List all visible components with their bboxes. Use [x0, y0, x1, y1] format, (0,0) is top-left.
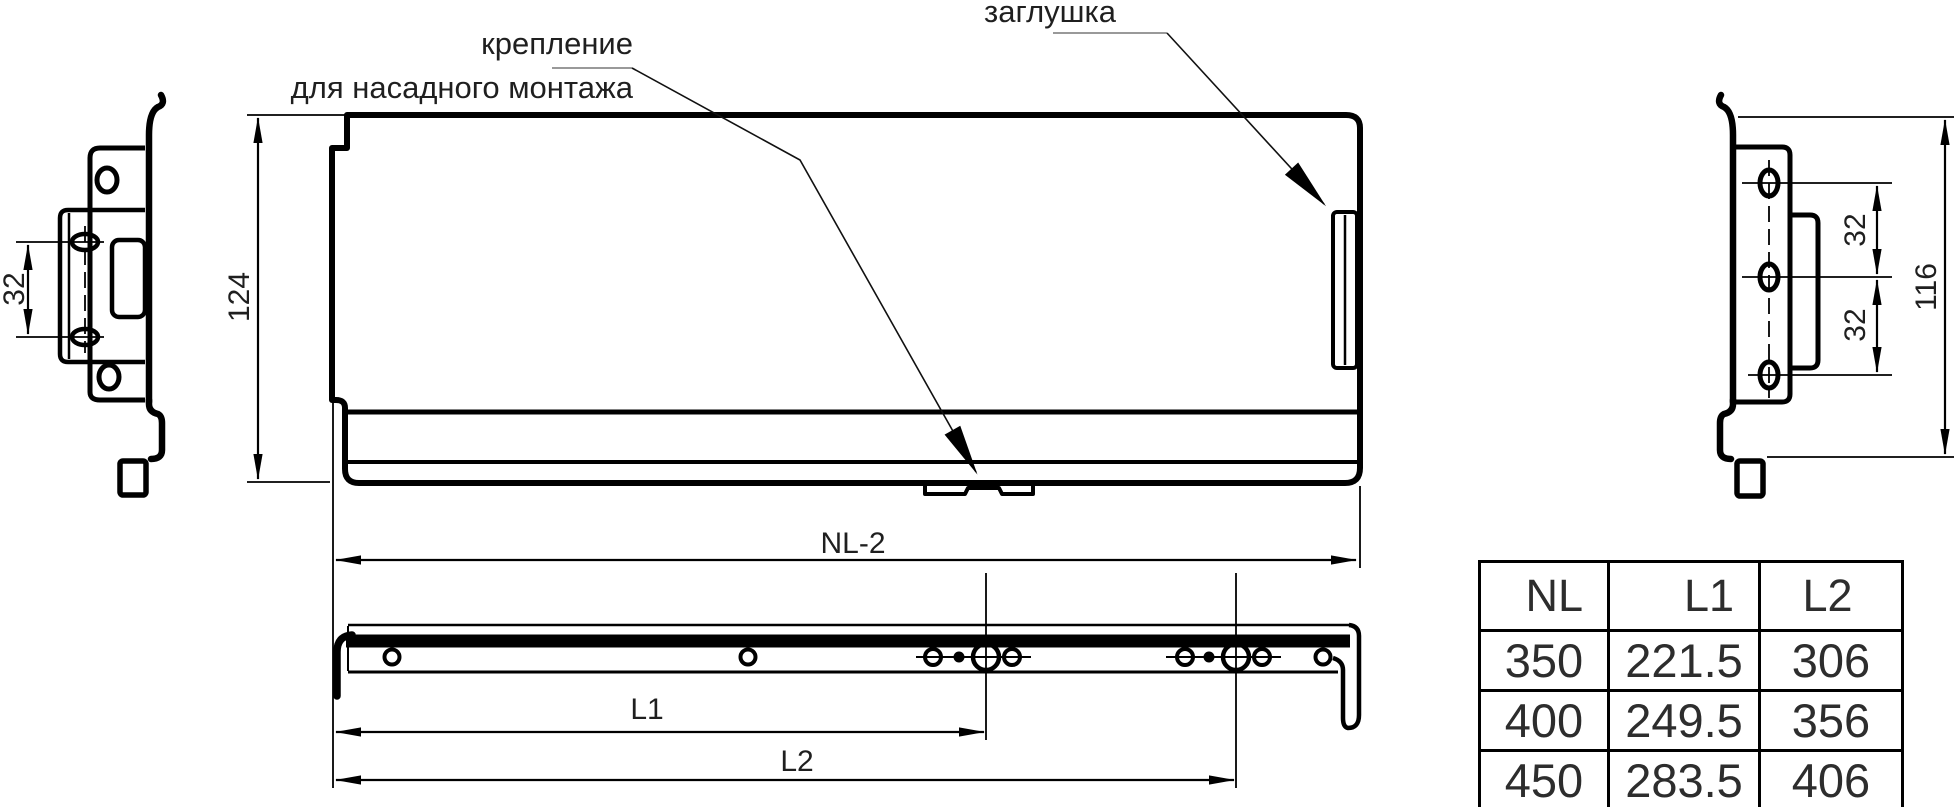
drawer-slide-technical-drawing: крепление для насадного монтажа заглушка…	[0, 0, 1958, 807]
mount-fixing-label: крепление для насадного монтажа	[291, 22, 633, 110]
table-cell-nl-450: 450	[1480, 751, 1609, 807]
side-panel-front-view	[332, 115, 1360, 494]
right-foot	[1737, 461, 1763, 496]
left-panel-section	[149, 95, 163, 402]
mount-fixing-label-line1: крепление	[291, 22, 633, 66]
dim-text-32-right-bottom: 32	[1839, 308, 1873, 341]
rail-rivet	[1204, 652, 1215, 663]
rail-rivet	[954, 652, 965, 663]
table-cell-l2-400: 356	[1760, 691, 1903, 751]
left-bracket-cutout	[112, 240, 145, 317]
left-hole-bottom	[99, 365, 119, 389]
dim-text-l1: L1	[630, 693, 663, 727]
table-header-nl: NL	[1480, 562, 1609, 631]
table-cell-l2-350: 306	[1760, 631, 1903, 691]
right-panel-section	[1719, 95, 1733, 402]
table-cell-nl-350: 350	[1480, 631, 1609, 691]
size-table: NL L1 L2 350 221.5 306 400 249.5 356 450…	[1478, 560, 1904, 807]
table-cell-nl-400: 400	[1480, 691, 1609, 751]
table-header-l2: L2	[1760, 562, 1903, 631]
plug-leader	[1167, 33, 1324, 204]
mount-fixing-label-line2: для насадного монтажа	[291, 66, 633, 110]
table-row: 450 283.5 406	[1480, 751, 1903, 807]
size-table-header-row: NL L1 L2	[1480, 562, 1903, 631]
left-foot	[120, 461, 146, 495]
table-cell-l1-450: 283.5	[1609, 751, 1760, 807]
rail-hole	[385, 650, 400, 665]
dim-text-124: 124	[223, 272, 257, 322]
table-cell-l1-350: 221.5	[1609, 631, 1760, 691]
right-end-view	[1719, 95, 1818, 496]
table-header-l1: L1	[1609, 562, 1760, 631]
dim-text-32-left: 32	[0, 272, 32, 305]
left-bottom-jog	[149, 400, 162, 459]
rail-hole	[1316, 650, 1331, 665]
left-end-view	[60, 95, 163, 495]
table-row: 400 249.5 356	[1480, 691, 1903, 751]
leader-lines	[552, 33, 1324, 472]
dim-text-32-right-top: 32	[1839, 213, 1873, 246]
bottom-rail-view	[337, 573, 1359, 788]
rail-hole	[741, 650, 756, 665]
dim-text-nl2: NL-2	[820, 527, 885, 561]
table-cell-l1-400: 249.5	[1609, 691, 1760, 751]
right-bottom-jog	[1720, 400, 1733, 459]
table-row: 350 221.5 306	[1480, 631, 1903, 691]
dim-text-116: 116	[1910, 263, 1944, 311]
table-cell-l2-450: 406	[1760, 751, 1903, 807]
dim-text-l2: L2	[780, 745, 813, 779]
left-hole-top	[97, 168, 117, 192]
right-back-plate	[1790, 215, 1818, 368]
plug-label: заглушка	[984, 0, 1116, 30]
panel-outline	[332, 115, 1360, 483]
